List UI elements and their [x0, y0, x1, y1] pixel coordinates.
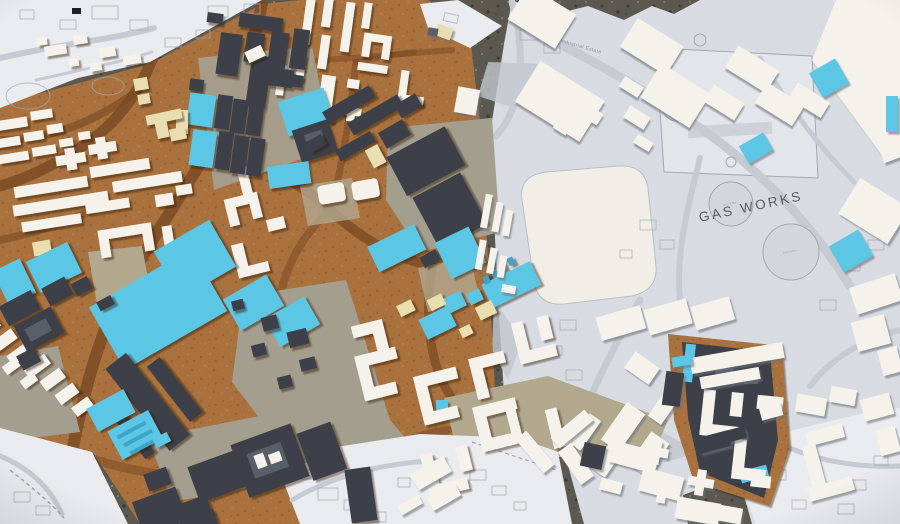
photo-vignette — [0, 0, 900, 524]
architectural-model-photo: GAS WORKS Industrial Estate Gas Holder G… — [0, 0, 900, 524]
model-scene: GAS WORKS Industrial Estate Gas Holder G… — [0, 0, 900, 524]
